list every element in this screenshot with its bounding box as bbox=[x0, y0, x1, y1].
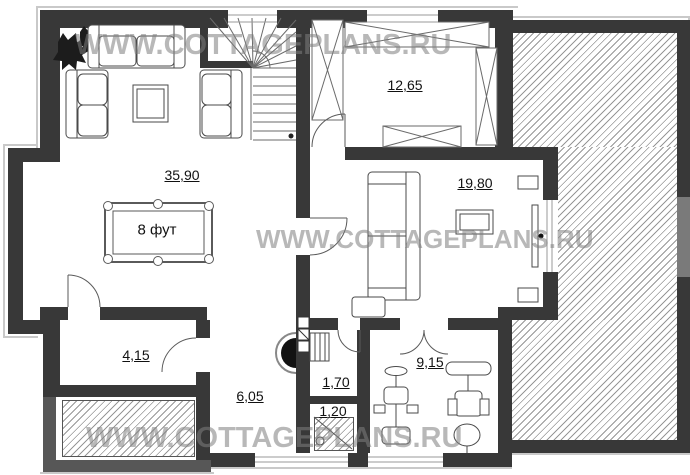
label-living-area: 35,90 bbox=[164, 167, 199, 183]
terrace-parapet-top bbox=[513, 20, 690, 33]
loveseat bbox=[66, 70, 108, 138]
loveseat bbox=[200, 70, 242, 138]
window bbox=[228, 10, 277, 28]
door-opening-wc bbox=[338, 318, 360, 330]
outline bbox=[36, 6, 38, 162]
watermark: WWW.COTTAGEPLANS.RU bbox=[256, 224, 593, 255]
door-opening-storage bbox=[68, 307, 100, 320]
watermark: WWW.COTTAGEPLANS.RU bbox=[75, 29, 451, 62]
terrace-parapet-right bbox=[677, 277, 690, 453]
label-shower-area: 1,20 bbox=[319, 403, 346, 419]
terrace-parapet-right bbox=[677, 20, 690, 197]
wall-dressing-right bbox=[495, 10, 513, 160]
wall-bottom bbox=[200, 453, 512, 467]
terrace-hatch bbox=[512, 320, 677, 440]
balcony-parapet-bottom bbox=[43, 460, 211, 472]
door-opening-storage-hall bbox=[196, 338, 210, 372]
terrace-hatch bbox=[513, 33, 677, 147]
terrace-parapet-opening bbox=[677, 197, 690, 277]
label-dressing-area: 12,65 bbox=[387, 77, 422, 93]
watermark: WWW.COTTAGEPLANS.RU bbox=[86, 422, 462, 455]
label-billiard-size: 8 фут bbox=[137, 222, 176, 239]
floor-plan: 35,90 8 фут 12,65 19,80 4,15 6,05 1,70 1… bbox=[0, 0, 690, 475]
outline bbox=[513, 16, 690, 18]
wall-stair-stub bbox=[200, 61, 253, 68]
outline bbox=[3, 144, 5, 338]
outline bbox=[36, 6, 518, 8]
outline bbox=[200, 467, 512, 469]
wall-gym-right bbox=[498, 320, 512, 453]
window bbox=[368, 453, 443, 467]
window bbox=[255, 453, 348, 467]
outline bbox=[3, 336, 38, 338]
label-gym-area: 9,15 bbox=[416, 354, 443, 370]
outline bbox=[512, 453, 690, 455]
terrace-parapet-bottom bbox=[512, 440, 690, 453]
radiator bbox=[310, 333, 329, 361]
wall-living-bottom bbox=[40, 307, 207, 320]
coffee-table bbox=[133, 85, 168, 122]
label-wc-area: 1,70 bbox=[322, 374, 349, 390]
wall-bulge-left bbox=[8, 148, 23, 334]
wall-dressing-bedroom bbox=[345, 147, 558, 160]
window bbox=[367, 10, 438, 28]
wall-storage-bottom bbox=[43, 385, 207, 397]
label-bedroom-area: 19,80 bbox=[457, 175, 492, 191]
outline bbox=[3, 144, 38, 146]
outline bbox=[40, 472, 214, 474]
fireplace bbox=[276, 333, 296, 373]
label-storage-area: 4,15 bbox=[122, 347, 149, 363]
wall-left-upper bbox=[40, 10, 60, 162]
door-opening-gym bbox=[400, 318, 448, 330]
label-hall-area: 6,05 bbox=[236, 388, 263, 404]
